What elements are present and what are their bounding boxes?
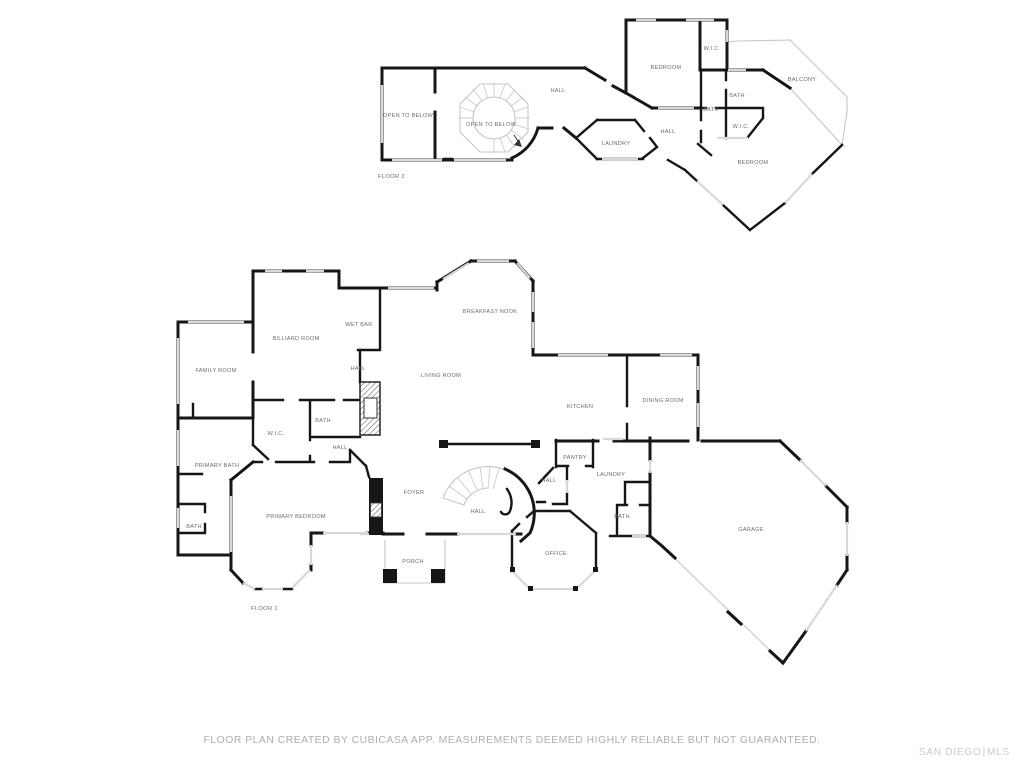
room-label: BALCONY (788, 77, 817, 83)
floor-plan-page: { "page": {"background": "#ffffff"}, "co… (0, 0, 1024, 768)
fireplace-hall (360, 382, 380, 435)
room-label: BATH (186, 524, 202, 530)
spiral-staircase (458, 82, 530, 153)
room-label: HALL (351, 366, 366, 372)
room-label: HALL (542, 478, 557, 484)
watermark-right: MLS (987, 747, 1010, 758)
watermark-separator: | (983, 747, 986, 758)
room-label: HALL (471, 509, 486, 515)
room-label: LIVING ROOM (421, 373, 461, 379)
porch-pillars (383, 569, 445, 583)
room-label: LAUNDRY (602, 141, 630, 147)
floor-2-walls (382, 20, 842, 230)
curved-staircase (443, 466, 534, 541)
room-label: BILLIARD ROOM (272, 336, 319, 342)
floor-1-walls (178, 261, 847, 663)
room-label: BATH (703, 107, 719, 113)
room-label: FOYER (404, 490, 425, 496)
watermark-left: SAN DIEGO (919, 747, 982, 758)
room-label: BEDROOM (651, 65, 682, 71)
garage-door-line (662, 546, 783, 663)
fireplace-primary-bedroom (369, 478, 383, 535)
room-label: DINING ROOM (642, 398, 683, 404)
room-label: PRIMARY BATH (195, 463, 239, 469)
room-label: PANTRY (563, 455, 587, 461)
floor-name-label: FLOOR 2 (378, 174, 405, 180)
floor-name-label: FLOOR 1 (251, 606, 278, 612)
room-label: BATH (614, 514, 630, 520)
room-label: FAMILY ROOM (195, 368, 236, 374)
room-label: HALL (661, 129, 676, 135)
room-label: W.I.C. (733, 124, 750, 130)
room-label: BATH (315, 418, 331, 424)
disclaimer-text: FLOOR PLAN CREATED BY CUBICASA APP. MEAS… (0, 735, 1024, 746)
room-label: PORCH (402, 559, 423, 565)
floor-plan-canvas: OPEN TO BELOWOPEN TO BELOWHALLLAUNDRYBED… (0, 0, 1024, 768)
room-label: BATH (729, 93, 745, 99)
room-label: HALL (333, 445, 348, 451)
room-label: GARAGE (738, 527, 763, 533)
room-label: W.I.C. (268, 431, 285, 437)
room-label: OPEN TO BELOW (383, 113, 433, 119)
room-label: LAUNDRY (597, 472, 625, 478)
floor-1-plan: FAMILY ROOMBILLIARD ROOMWET BARBREAKFAST… (178, 261, 847, 663)
room-label: W.I.C. (704, 46, 721, 52)
room-label: BEDROOM (738, 160, 769, 166)
room-label: HALL (551, 88, 566, 94)
floor-2-plan: OPEN TO BELOWOPEN TO BELOWHALLLAUNDRYBED… (378, 20, 847, 230)
room-label: PRIMARY BEDROOM (266, 514, 326, 520)
mls-watermark: SAN DIEGO|MLS (919, 747, 1010, 758)
room-label: OPEN TO BELOW (466, 122, 516, 128)
room-label: WET BAR (345, 322, 372, 328)
room-label: OFFICE (545, 551, 567, 557)
room-label: KITCHEN (567, 404, 593, 410)
room-label: BREAKFAST NOOK (463, 309, 517, 315)
